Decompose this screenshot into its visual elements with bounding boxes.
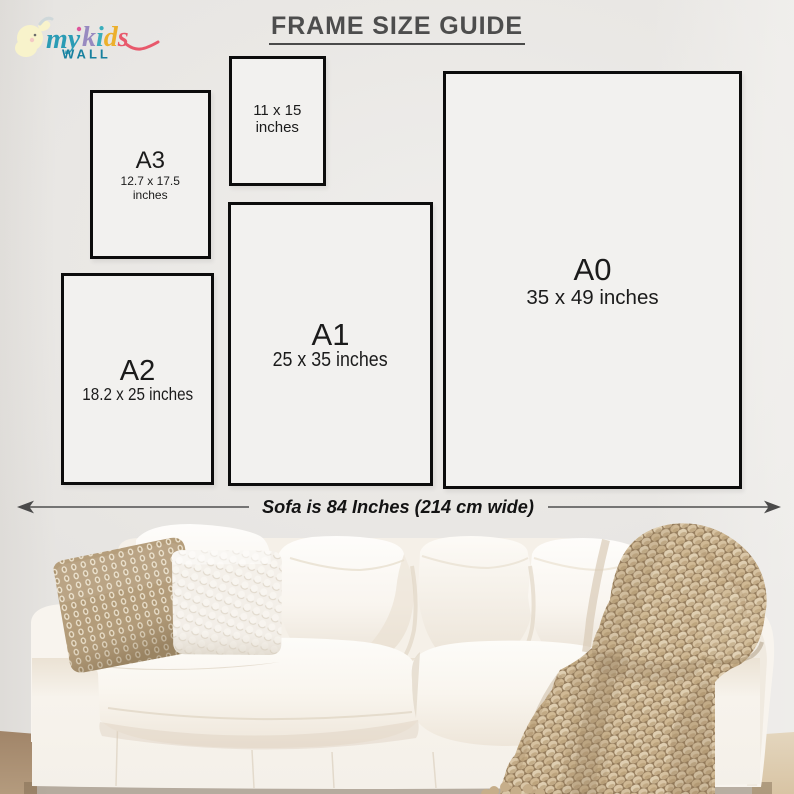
svg-text:WALL: WALL (62, 47, 111, 62)
